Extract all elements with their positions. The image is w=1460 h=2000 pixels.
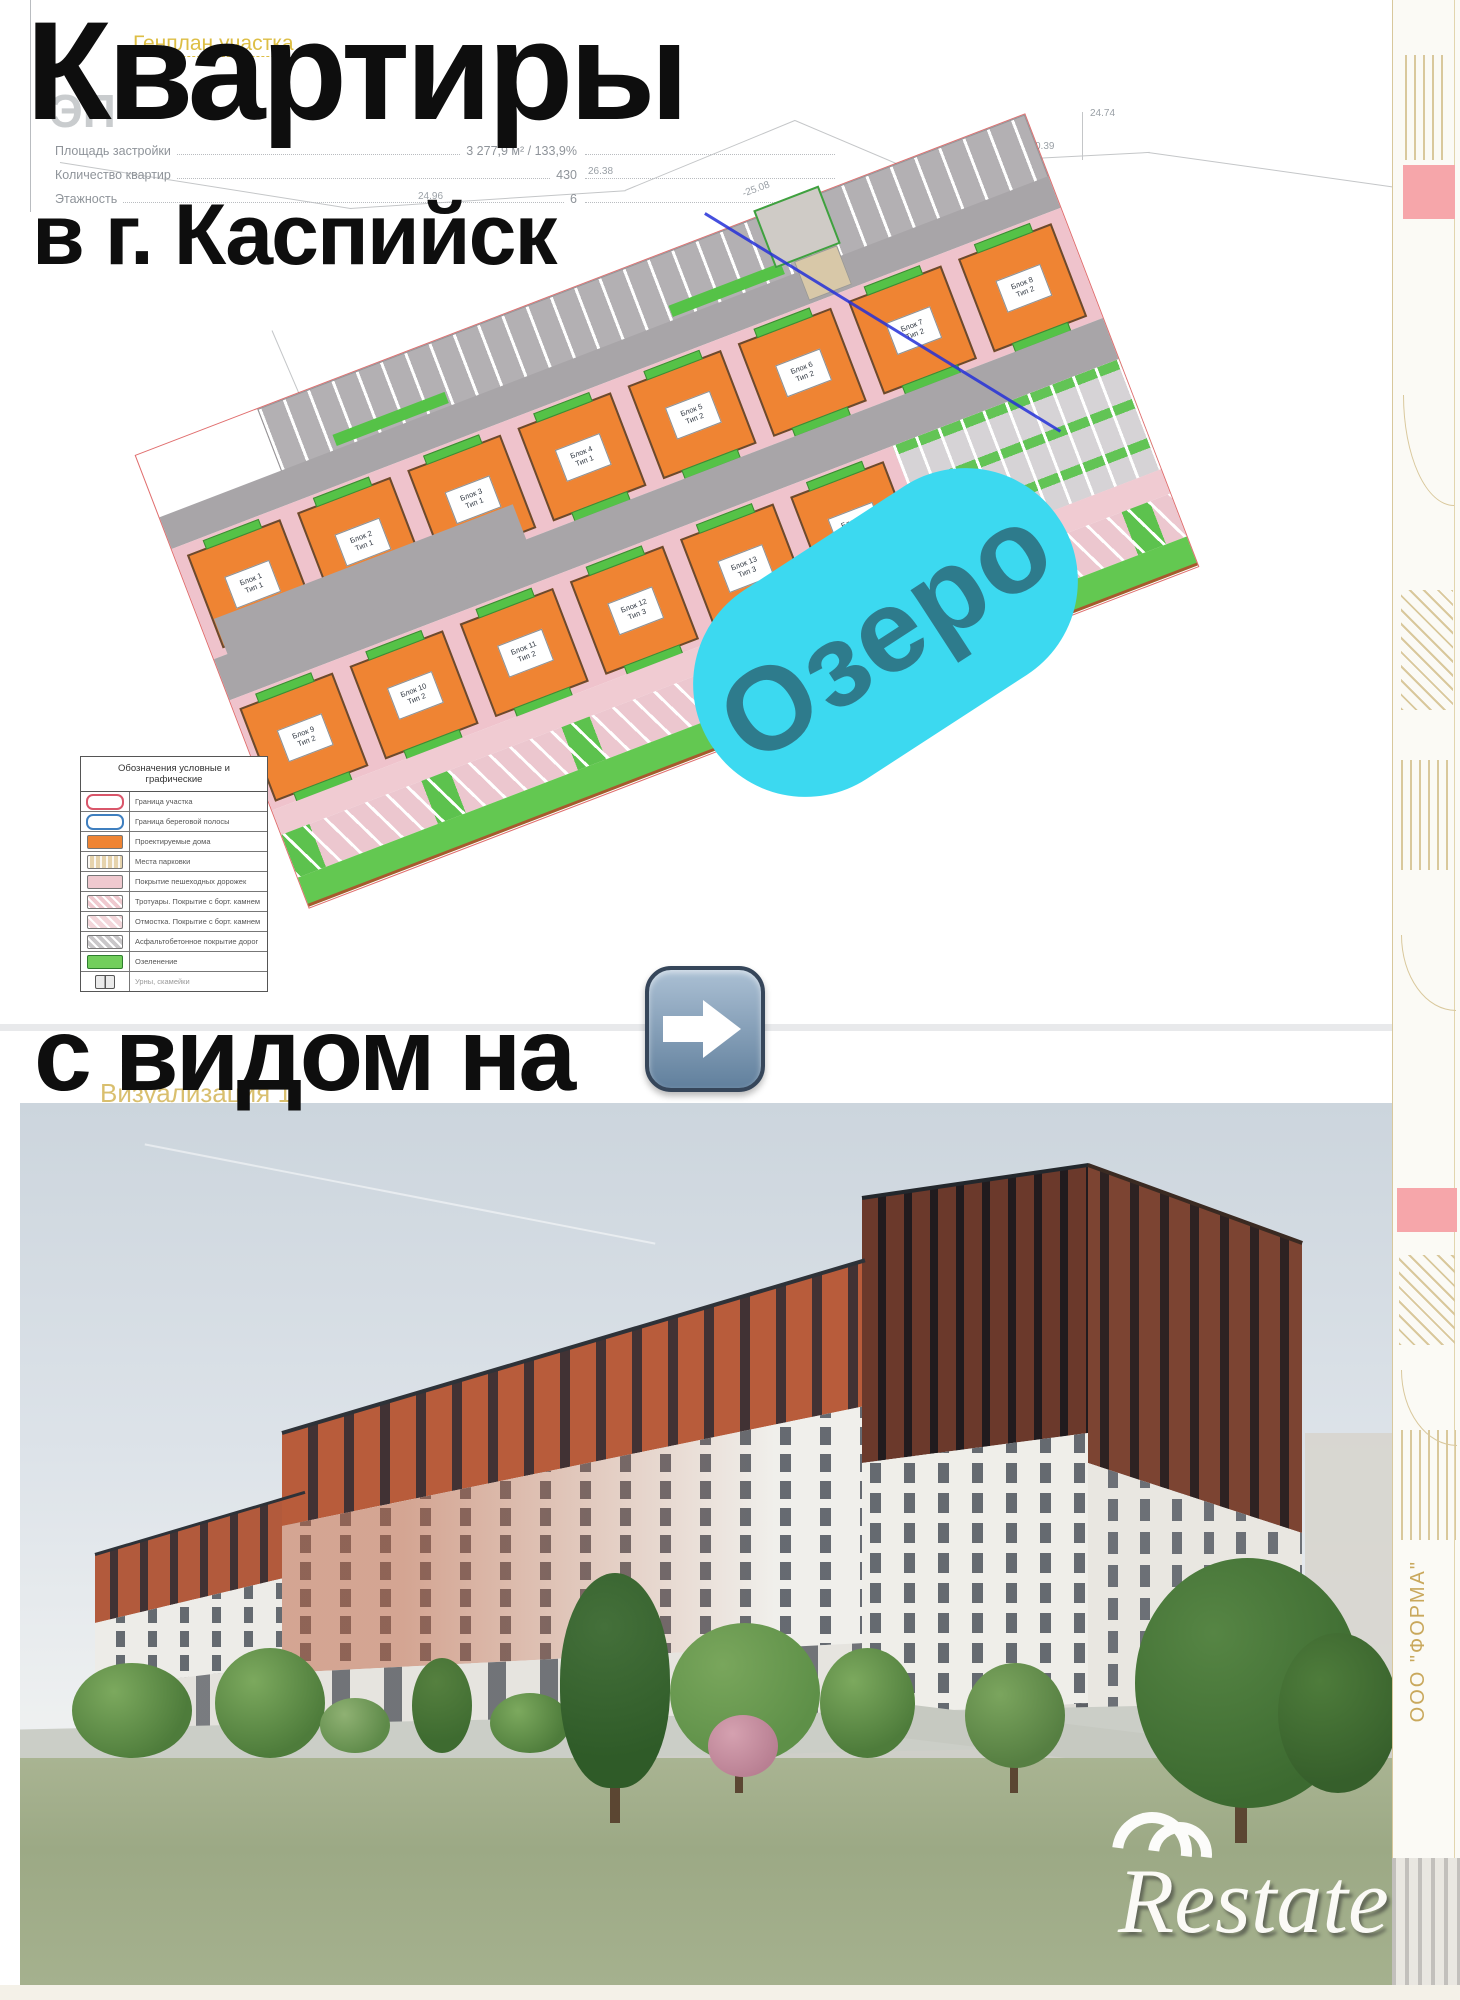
dimension-tick <box>1082 112 1083 160</box>
legend-row: Покрытие пешеходных дорожек <box>81 872 267 892</box>
legend-swatch-apron <box>87 915 123 929</box>
headline-line3: с видом на <box>34 996 573 1115</box>
frame-line <box>1454 0 1455 1858</box>
dotted-leader <box>585 154 835 155</box>
dotted-leader <box>585 178 835 179</box>
conifer-tree <box>560 1573 670 1788</box>
building-plaque: Блок 11Тип 2 <box>497 629 554 678</box>
dotted-leader <box>177 178 550 179</box>
building-plaque: Блок 6Тип 2 <box>775 348 832 397</box>
headline-line1: Квартиры <box>26 4 685 137</box>
stat-value: 6 <box>570 192 577 206</box>
right-arrow-icon <box>645 966 765 1092</box>
watermark-logo: Restate <box>1118 1848 1389 1954</box>
tree <box>490 1693 570 1753</box>
frame-hatch <box>1405 55 1449 160</box>
legend-swatch-greenery <box>87 955 123 969</box>
contour-line <box>1148 152 1398 188</box>
frame-arc <box>1401 935 1456 1011</box>
dotted-leader <box>177 154 460 155</box>
legend-row: Асфальтобетонное покрытие дорог <box>81 932 267 952</box>
stat-value: 430 <box>556 168 577 182</box>
legend: Обозначения условные и графические Грани… <box>80 756 268 992</box>
sheet-margin <box>0 1985 1460 2000</box>
stat-row: Количество квартир 430 <box>55 160 835 182</box>
legend-row: Проектируемые дома <box>81 832 267 852</box>
company-name-vertical: ООО "ФОРМА" <box>1407 1560 1430 1722</box>
frame-hatch <box>1401 1430 1456 1540</box>
stat-label: Количество квартир <box>55 168 171 182</box>
building-plaque: Блок 9Тип 2 <box>277 713 334 762</box>
real-estate-promo-image: Генплан участка ЭП Площадь застройки 3 2… <box>0 0 1460 2000</box>
tree <box>215 1648 325 1758</box>
frame-hatch <box>1401 590 1453 710</box>
building-plaque: Блок 4Тип 1 <box>555 433 612 482</box>
flowering-tree <box>708 1715 778 1777</box>
legend-row: Тротуары. Покрытие с борт. камнем <box>81 892 267 912</box>
contrail <box>145 1143 656 1244</box>
building-plaque: Блок 12Тип 3 <box>607 586 664 635</box>
legend-swatch-asphalt <box>87 935 123 949</box>
tree <box>965 1663 1065 1768</box>
frame-mark <box>1397 1188 1457 1232</box>
fence <box>1392 1858 1460 1988</box>
legend-row: Озеленение <box>81 952 267 972</box>
legend-row: Урны, скамейки <box>81 972 267 991</box>
legend-swatch-furniture <box>95 975 115 989</box>
legend-row: Места парковки <box>81 852 267 872</box>
frame-hatch <box>1399 1255 1455 1345</box>
drawing-frame-strip: ООО "ФОРМА" <box>1392 0 1460 1858</box>
dimension-label: 24.74 <box>1090 108 1115 119</box>
frame-arc <box>1403 395 1454 506</box>
tree <box>412 1658 472 1753</box>
tree <box>1278 1633 1392 1793</box>
tree <box>72 1663 192 1758</box>
arrow-head <box>703 1000 741 1058</box>
legend-swatch-paths <box>87 875 123 889</box>
legend-title: Обозначения условные и графические <box>81 757 267 792</box>
legend-swatch-sidewalk <box>87 895 123 909</box>
building-plaque: Блок 10Тип 2 <box>387 671 444 720</box>
legend-swatch-shore <box>86 814 124 830</box>
legend-swatch-boundary <box>86 794 124 810</box>
frame-hatch <box>1401 760 1453 870</box>
arrow-shaft <box>663 1016 705 1042</box>
legend-row: Граница участка <box>81 792 267 812</box>
tree <box>820 1648 915 1758</box>
building-plaque: Блок 8Тип 2 <box>995 264 1052 313</box>
tree <box>320 1698 390 1753</box>
building-plaque: Блок 5Тип 2 <box>665 391 722 440</box>
legend-row: Отмостка. Покрытие с борт. камнем <box>81 912 267 932</box>
frame-mark <box>1403 165 1455 219</box>
headline-line2: в г. Каспийск <box>32 186 556 285</box>
legend-swatch-buildings <box>87 835 123 849</box>
legend-row: Граница береговой полосы <box>81 812 267 832</box>
legend-swatch-parking <box>87 855 123 869</box>
